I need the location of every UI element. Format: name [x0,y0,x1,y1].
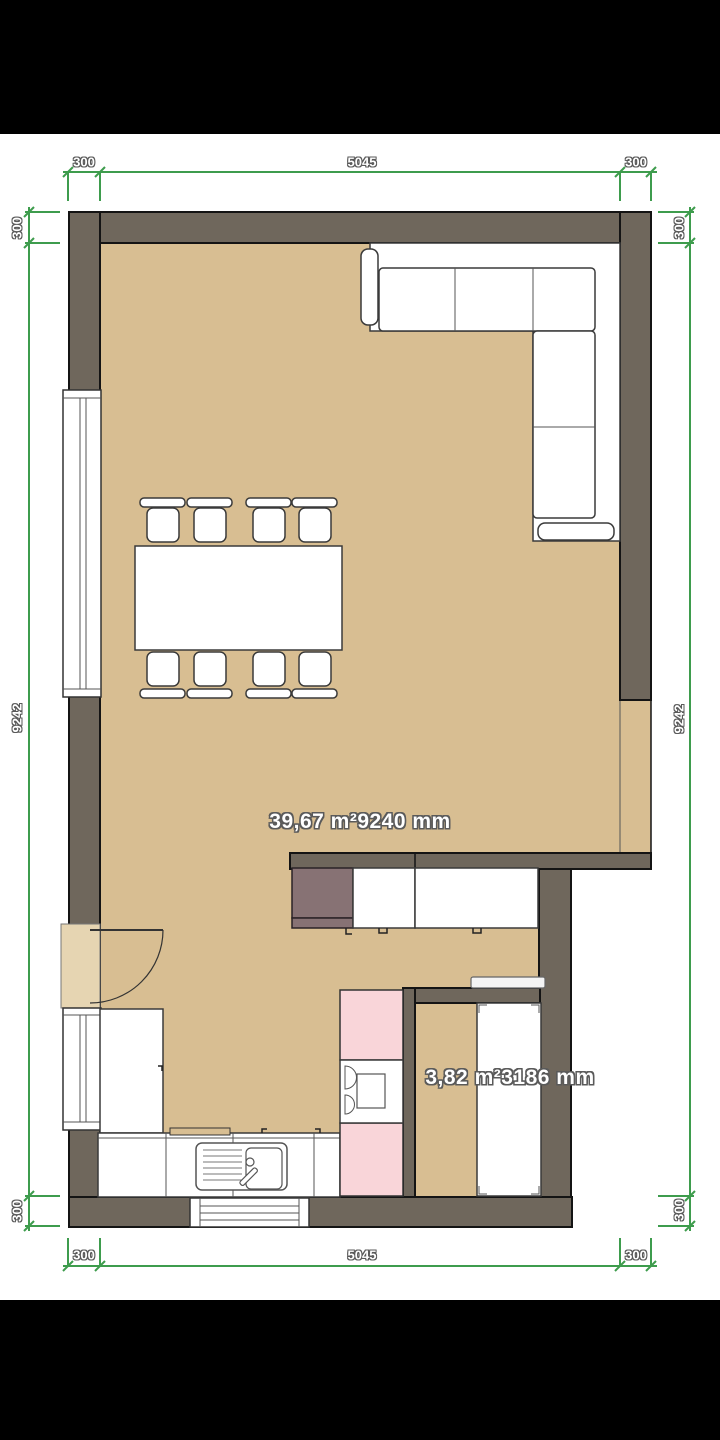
dim-top-left: 300 [73,155,95,170]
dim-bottom-center: 5045 [348,1248,377,1263]
sofa-armrest-bottom [538,523,614,540]
wall-right-lower[interactable] [539,869,571,1227]
dim-top-right: 300 [625,155,647,170]
faucet-icon [246,1158,254,1166]
floor-plan-screenshot: 300 5045 300 300 5045 300 300 9242 300 3… [0,0,720,1440]
cooktop-unit [340,1060,403,1123]
appliance-column[interactable] [340,990,403,1196]
wall-right-upper[interactable] [620,212,651,700]
wall-bathroom-left[interactable] [403,988,415,1197]
room-label-living-dining[interactable]: 39,67 m²9240 mm [269,810,450,834]
wall-bathroom-top[interactable] [403,988,540,1003]
dim-right-top: 300 [672,217,687,239]
dim-bottom-right: 300 [625,1248,647,1263]
bathtub[interactable] [477,1003,541,1196]
dimension-line-left [24,207,60,1231]
kitchen-sink[interactable] [196,1143,287,1190]
refrigerator[interactable] [292,868,353,934]
dim-right-center: 9242 [672,705,687,734]
window-left-upper[interactable] [63,390,101,697]
dim-right-bottom: 300 [672,1199,687,1221]
letterbox-top [0,0,720,134]
dim-top-center: 5045 [348,155,377,170]
dim-left-top: 300 [10,217,25,239]
counter-bar [170,1128,230,1135]
wall-bottom[interactable] [69,1197,572,1227]
window-bottom[interactable] [190,1198,309,1227]
dim-left-bottom: 300 [10,1200,25,1222]
tall-cabinet[interactable] [100,1009,163,1133]
sofa-armrest-left [361,249,378,325]
wall-top[interactable] [69,212,651,243]
room-label-bathroom[interactable]: 3,82 m²3186 mm [425,1066,594,1090]
window-left-lower[interactable] [63,1008,101,1130]
wall-mid-horizontal[interactable] [290,853,651,869]
floor-plan-canvas [0,0,720,1440]
wall-shelf[interactable] [471,977,545,988]
letterbox-bottom [0,1300,720,1440]
dining-table[interactable] [135,546,342,650]
dim-bottom-left: 300 [73,1248,95,1263]
dim-left-center: 9242 [10,704,25,733]
dimension-line-top [63,167,657,201]
kitchen-wall-cabinets[interactable] [353,868,538,933]
